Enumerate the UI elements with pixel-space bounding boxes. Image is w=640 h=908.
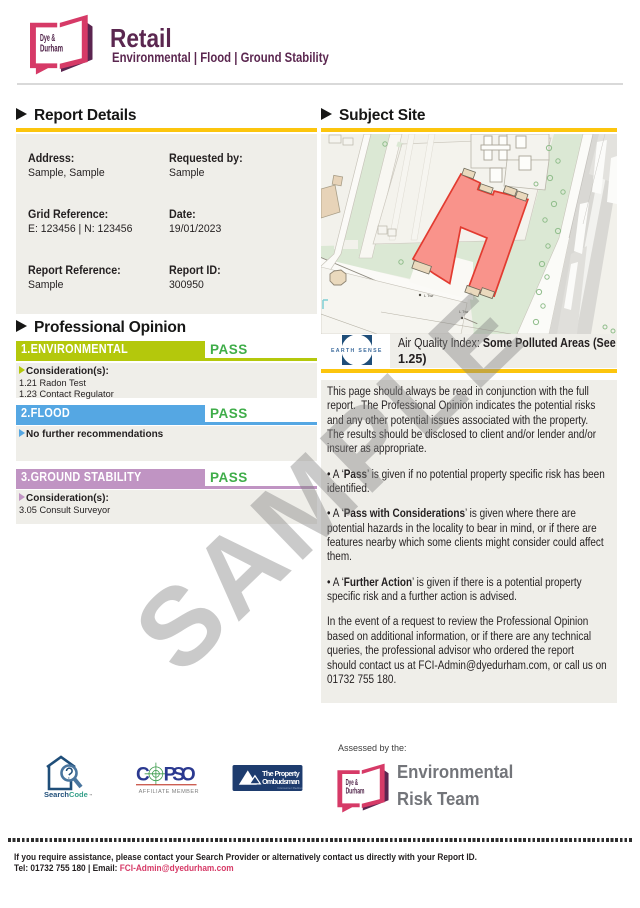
svg-text:Durham: Durham [346,786,365,796]
svg-text:Ombudsman: Ombudsman [262,778,300,786]
svg-text:The Property: The Property [262,770,300,778]
svg-text:SearchCode ™: SearchCode ™ [44,790,92,798]
svg-text:AFFILIATE MEMBER: AFFILIATE MEMBER [139,789,199,795]
svg-text:C: C [136,765,150,786]
svg-text:Dye &: Dye & [40,33,56,44]
svg-text:PSO: PSO [164,765,196,786]
svg-text:Durham: Durham [40,44,63,55]
svg-text:Consumer Redress: Consumer Redress [277,786,303,790]
